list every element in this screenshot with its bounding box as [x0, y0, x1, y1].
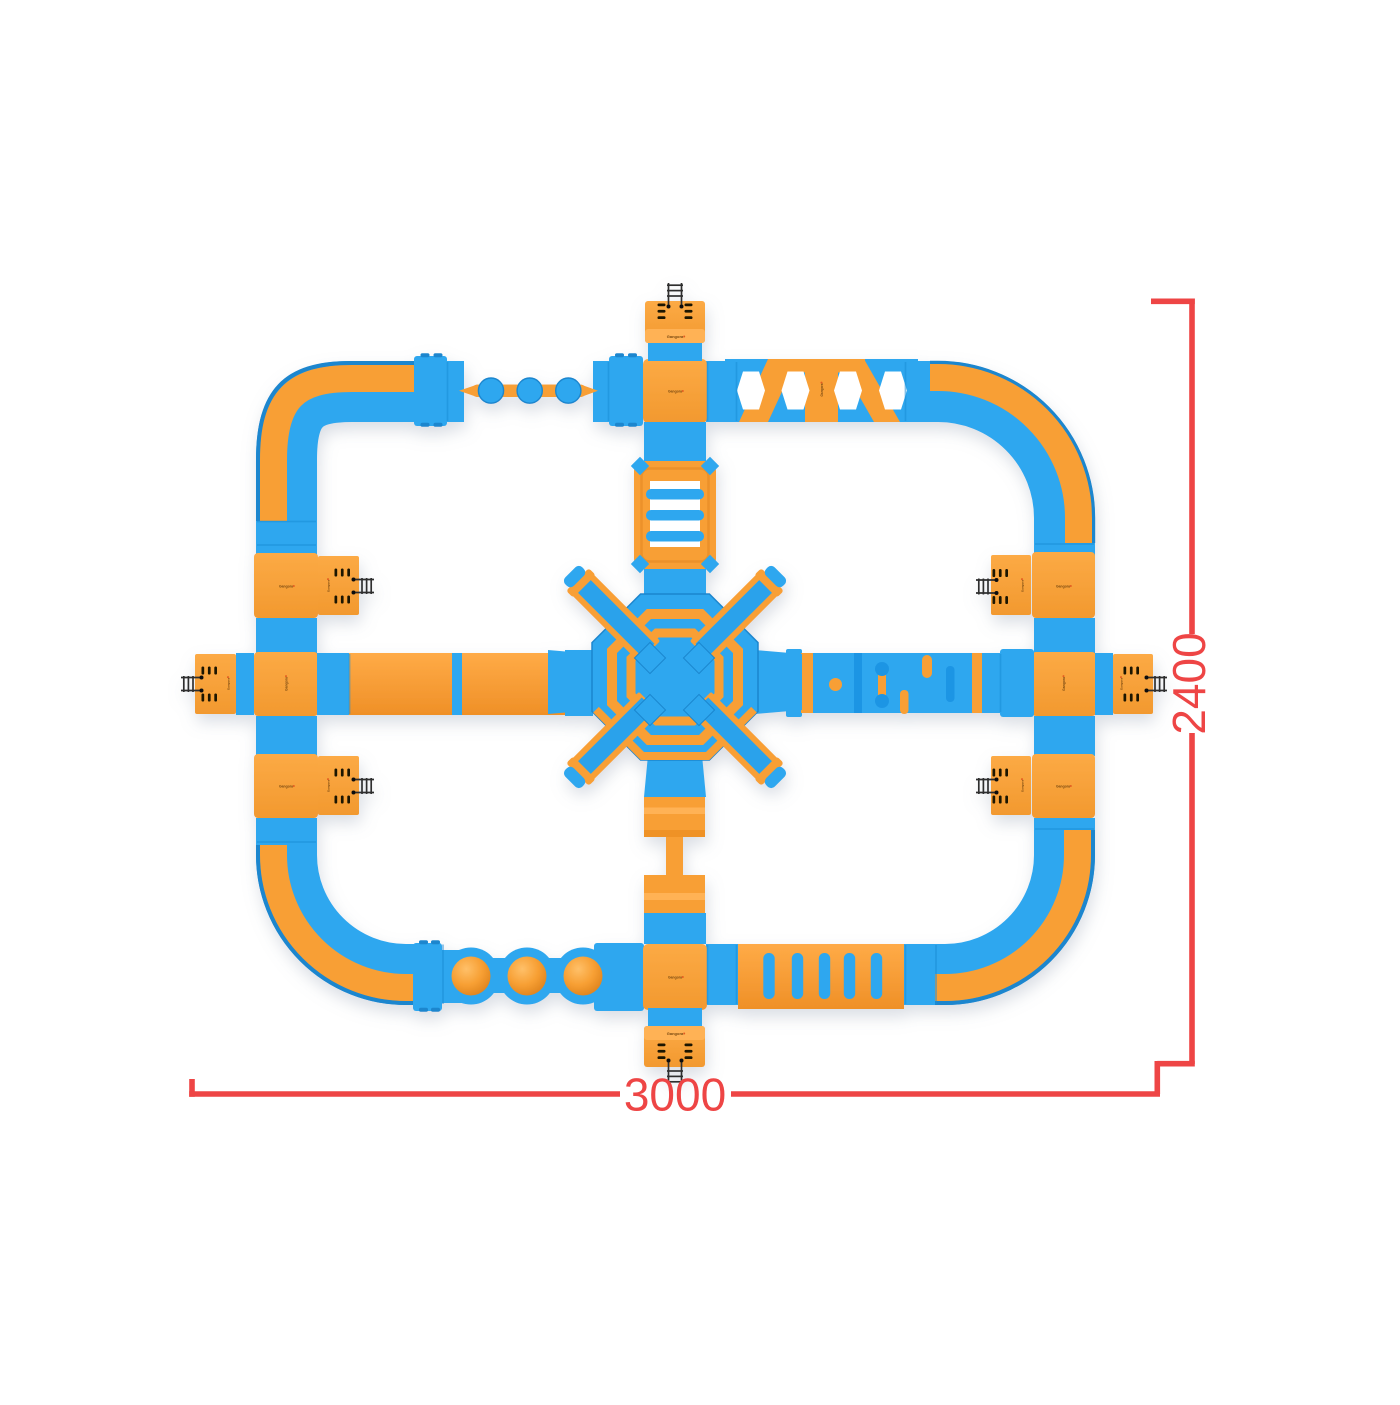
svg-text:Gangora: Gangora — [279, 785, 293, 789]
svg-text:Gangora: Gangora — [1056, 585, 1070, 589]
svg-text:Gangora: Gangora — [227, 678, 231, 691]
svg-text:Gangora: Gangora — [1056, 785, 1070, 789]
svg-text:Gangora: Gangora — [279, 585, 293, 589]
svg-text:Gangora: Gangora — [327, 580, 331, 593]
svg-text:Gangora: Gangora — [667, 334, 684, 339]
svg-text:Gangora: Gangora — [1062, 677, 1066, 691]
svg-text:Gangora: Gangora — [1120, 678, 1124, 691]
svg-text:Gangora: Gangora — [285, 677, 289, 691]
svg-text:Gangora: Gangora — [668, 976, 682, 980]
svg-text:Gangora: Gangora — [1021, 780, 1025, 793]
svg-text:2400: 2400 — [1163, 632, 1215, 734]
svg-text:Gangora: Gangora — [667, 1031, 684, 1036]
svg-text:Gangora: Gangora — [668, 390, 682, 394]
svg-text:Gangora: Gangora — [820, 383, 824, 396]
svg-text:Gangora: Gangora — [1021, 580, 1025, 593]
svg-text:Gangora: Gangora — [327, 780, 331, 793]
svg-text:3000: 3000 — [624, 1069, 726, 1121]
